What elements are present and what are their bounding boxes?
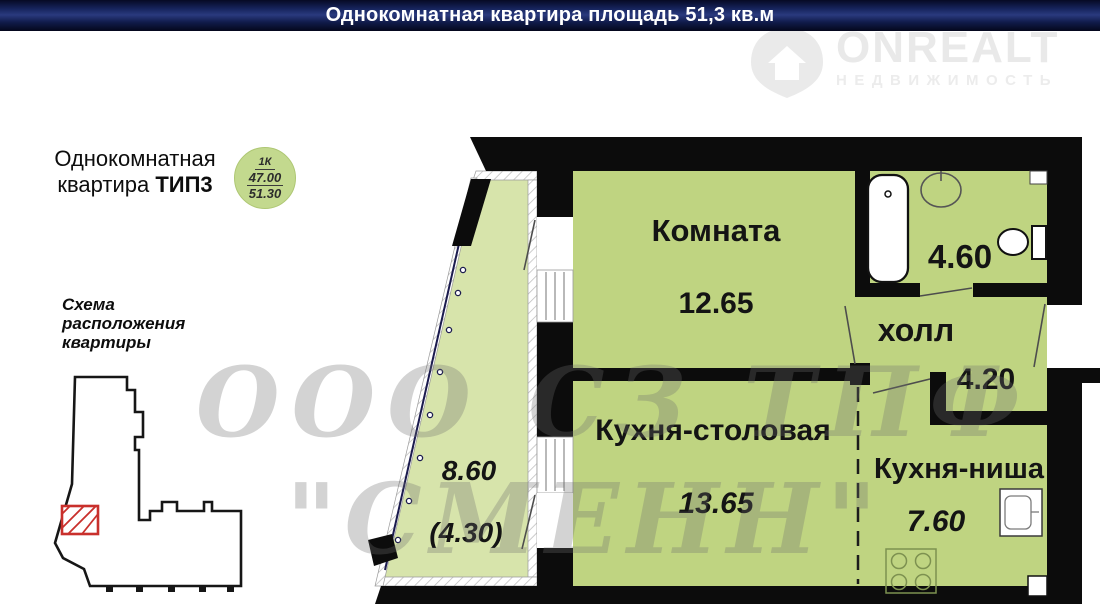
wall-right-nub (1082, 368, 1100, 383)
room-area-bathroom: 4.60 (928, 238, 992, 275)
entrance-opening (1047, 305, 1100, 368)
apartment-type: ТИП3 (155, 172, 212, 197)
apartment-location-marker (62, 506, 98, 534)
apartment-title-line2: квартира ТИП3 (40, 172, 230, 198)
badge-living-area: 47.00 (247, 170, 284, 186)
wall-bottom (375, 586, 1082, 604)
apartment-title: Однокомнатная квартира ТИП3 (40, 146, 230, 198)
badge-total-area: 51.30 (249, 186, 282, 201)
balcony-hatch-bottom (380, 577, 537, 586)
wall-bath-bottom-left (855, 283, 920, 297)
wall-left-seg2 (537, 322, 573, 437)
wall-left-seg3 (537, 548, 573, 588)
kitchen-sink (1000, 489, 1042, 536)
scheme-title: Схема расположения квартиры (62, 295, 185, 352)
building-outline (55, 377, 241, 586)
wall-hall-jog-v (930, 372, 946, 425)
room-label-hall: холл (878, 312, 954, 348)
page-title: Однокомнатная квартира площадь 51,3 кв.м (326, 4, 775, 27)
onrealt-pin-icon (748, 26, 826, 100)
room-area-komnata: 12.65 (678, 287, 753, 320)
wall-hall-jog-h (946, 411, 1047, 425)
badge-rooms: 1К (255, 156, 276, 170)
balcony-door-kitchen (537, 493, 573, 548)
room-area-balcony: 8.60 (442, 455, 497, 486)
room-area-kitchen-dining: 13.65 (678, 487, 754, 520)
room-area-hall: 4.20 (957, 363, 1015, 396)
wall-room-divider (573, 368, 850, 381)
room-label-komnata: Комната (652, 213, 782, 248)
location-scheme (40, 368, 255, 603)
room-label-kitchen-niche: Кухня-ниша (874, 453, 1045, 485)
page: Однокомнатная квартира площадь 51,3 кв.м… (0, 0, 1100, 606)
brand-name: ONREALT (836, 26, 1059, 70)
wall-right-lower (1047, 368, 1082, 604)
area-badge: 1К 47.00 51.30 (234, 147, 296, 209)
kitchen-vent (1028, 576, 1047, 596)
wall-divider-stub (850, 363, 870, 385)
room-area-kitchen-niche: 7.60 (907, 505, 966, 538)
apartment-title-line1: Однокомнатная (40, 146, 230, 172)
wall-top (470, 137, 1082, 171)
onrealt-logo: ONREALT НЕДВИЖИМОСТЬ (748, 26, 1059, 100)
floor-plan: Комната 12.65 4.60 холл 4.20 Кухня-столо… (360, 125, 1100, 606)
room-area-balcony-coef: (4.30) (429, 517, 502, 548)
onrealt-text: ONREALT НЕДВИЖИМОСТЬ (836, 26, 1059, 89)
wall-right-upper (1047, 137, 1082, 305)
balcony-door-komnata (537, 217, 573, 270)
balcony-hatch-top (473, 171, 537, 180)
wall-left-seg1 (537, 171, 573, 217)
header-bar: Однокомнатная квартира площадь 51,3 кв.м (0, 0, 1100, 31)
wall-bath-bottom-right (973, 283, 1047, 297)
room-label-kitchen-dining: Кухня-столовая (595, 414, 830, 447)
brand-tagline: НЕДВИЖИМОСТЬ (836, 72, 1059, 89)
bath-vent (1030, 171, 1047, 184)
